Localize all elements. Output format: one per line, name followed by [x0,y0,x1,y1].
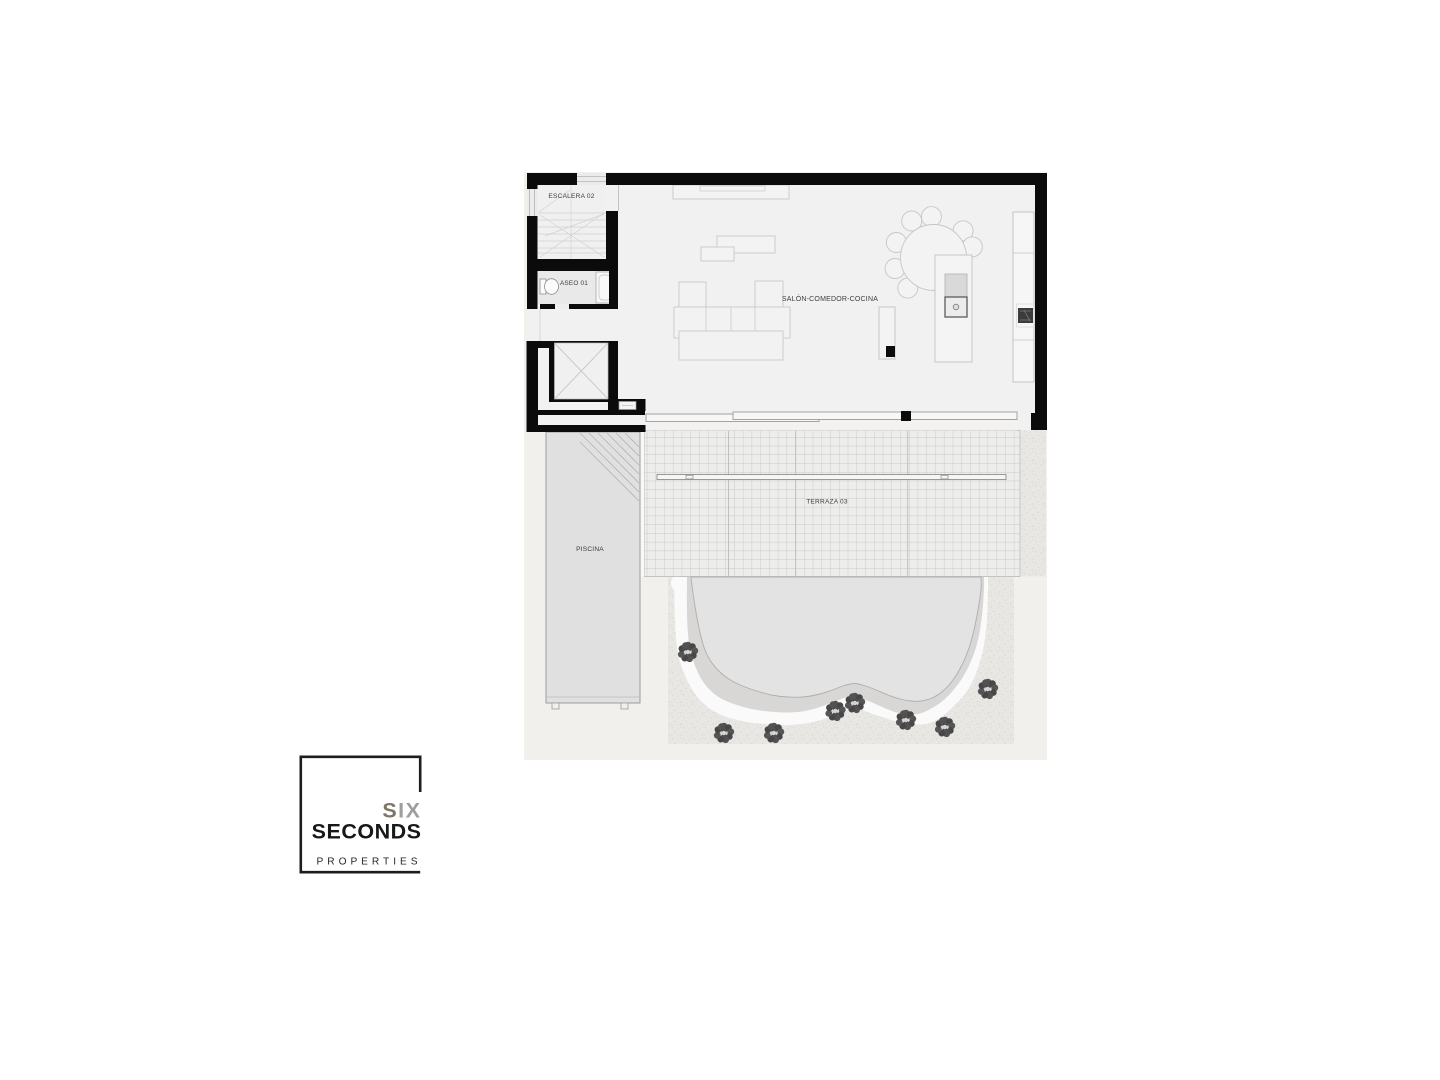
svg-text:PISCINA: PISCINA [576,546,604,553]
svg-text:SALÓN-COMEDOR-COCINA: SALÓN-COMEDOR-COCINA [782,294,878,303]
svg-text:ASEO 01: ASEO 01 [560,280,588,287]
svg-text:SECONDS: SECONDS [312,820,422,844]
svg-text:PROPERTIES: PROPERTIES [317,857,422,868]
svg-text:ESCALERA 02: ESCALERA 02 [548,193,594,200]
svg-text:TERRAZA 03: TERRAZA 03 [806,499,848,506]
